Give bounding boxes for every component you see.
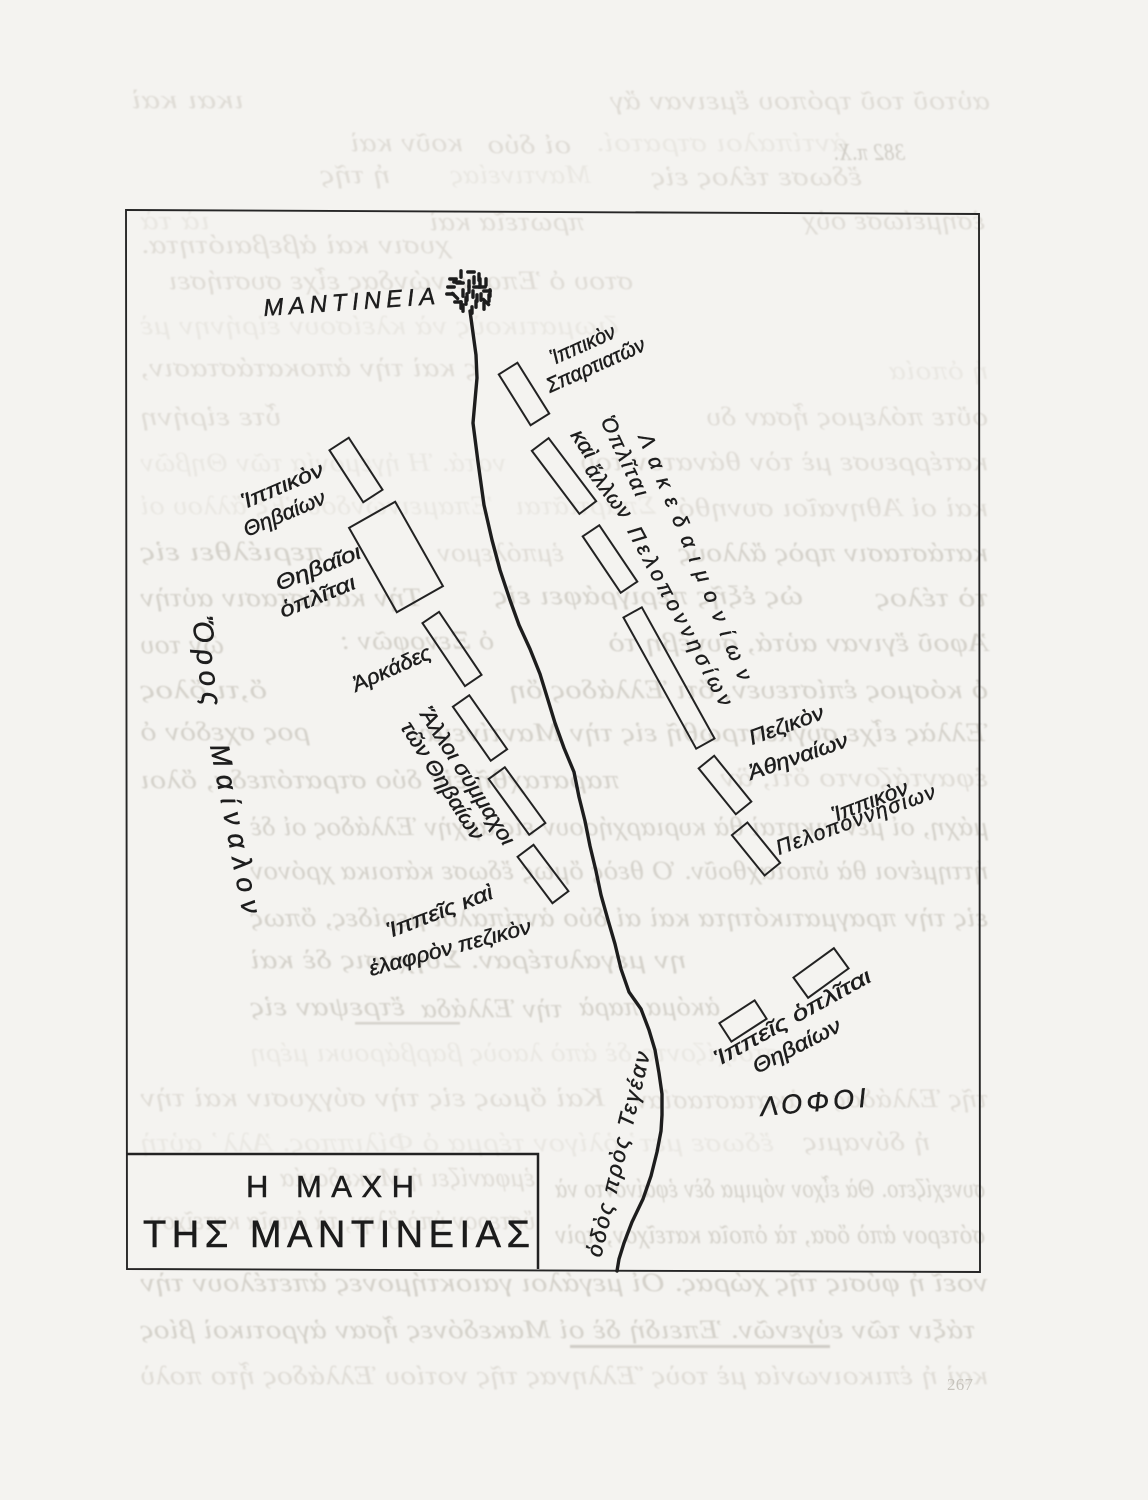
svg-text:ἀντίπαλοι στρατοί.: ἀντίπαλοι στρατοί. (595, 128, 848, 157)
svg-text:ἡ ὁποία: ἡ ὁποία (888, 356, 988, 385)
svg-text:κατάστασιν πρὸς ἄλλους: κατάστασιν πρὸς ἄλλους (678, 538, 988, 567)
svg-text:ἡττημένοι θὰ ὑποταχθοῦν. Ὁ θεὸ: ἡττημένοι θὰ ὑποταχθοῦν. Ὁ θεὸς ὅμως ἔδω… (250, 856, 988, 885)
svg-text:ς καὶ τὴν ἀποκατάστασιν,: ς καὶ τὴν ἀποκατάστασιν, (140, 353, 478, 382)
svg-text:ἡ τῆς: ἡ τῆς (320, 160, 390, 189)
svg-text:ζιωματικοὺς νὰ κλείσουν εἰρήνη: ζιωματικοὺς νὰ κλείσουν εἰρήνην μὲ (140, 311, 619, 340)
svg-text:καὶ οἱ Ἀθηναῖοι συνηθό: καὶ οἱ Ἀθηναῖοι συνηθό (678, 493, 988, 522)
svg-text:Ἀφοῦ ἔγιναν αὐτά, συνέβη τὸ: Ἀφοῦ ἔγιναν αὐτά, συνέβη τὸ (608, 628, 990, 657)
svg-text:σότερον ἀπὸ ὅσα, τὰ ὁποῖα κατε: σότερον ἀπὸ ὅσα, τὰ ὁποῖα κατεῖχον, πρὶν (555, 1220, 985, 1249)
svg-text:οἱ δύο: οἱ δύο (487, 130, 571, 159)
svg-text:ἔτρεψαν εἰς: ἔτρεψαν εἰς (250, 992, 405, 1021)
svg-text:ὡς ἑξῆς περιγράφει εἰς: ὡς ἑξῆς περιγράφει εἰς (493, 581, 803, 610)
svg-text:τάξιν τῶν εὐγενῶν. Ἐπειδὴ δὲ ο: τάξιν τῶν εὐγενῶν. Ἐπειδὴ δὲ οἱ Μακεδόνε… (140, 1315, 975, 1344)
svg-text:ἀκόμα παρὰ: ἀκόμα παρὰ (578, 992, 720, 1021)
svg-text:ἐσημείωσε οὐχ: ἐσημείωσε οὐχ (802, 206, 985, 235)
svg-text:περιέλθει εἰς: περιέλθει εἰς (140, 537, 323, 566)
svg-text:στοιχίζοντο δὲ ἀπὸ λαοὺς βαρβά: στοιχίζοντο δὲ ἀπὸ λαοὺς βαρβάρουκι μέρη (250, 1038, 780, 1067)
svg-text:Η ΜΑΧΗ: Η ΜΑΧΗ (246, 1169, 422, 1204)
svg-text:τὸ τέλος: τὸ τέλος (875, 583, 988, 612)
svg-text:χυσιν καὶ ἀβεβαιότητα.: χυσιν καὶ ἀβεβαιότητα. (140, 230, 454, 259)
svg-text:ἔδωσε τέλος εἰς: ἔδωσε τέλος εἰς (651, 162, 862, 191)
svg-text:εἰς τὴν πραγματικότητα καὶ αἱ: εἰς τὴν πραγματικότητα καὶ αἱ δύο ἀντίπα… (250, 903, 988, 932)
svg-text:Ἑλλὰς εἶχε συγκεντρωθῆ εἰς τὴν: Ἑλλὰς εἶχε συγκεντρωθῆ εἰς τὴν Μαντίνεια… (411, 718, 988, 747)
svg-text:ικαι καὶ: ικαι καὶ (131, 85, 244, 114)
svg-text:Μαντινείας: Μαντινείας (450, 160, 592, 189)
svg-text:οὔτε πόλεμος ἦσαν δυ: οὔτε πόλεμος ἦσαν δυ (706, 402, 988, 431)
svg-text:ὁ κόσμος ἐπίστευεν, ὅτι Ἑλλάδο: ὁ κόσμος ἐπίστευεν, ὅτι Ἑλλάδος ὅη (509, 675, 988, 704)
svg-text:κοῦν καὶ: κοῦν καὶ (350, 128, 463, 157)
svg-text:267: 267 (947, 1375, 974, 1394)
svg-text:ὗτε εἰρήνη: ὗτε εἰρήνη (140, 402, 281, 431)
svg-text:καὶ ἡ ἐπικοινωνία μὲ τοὺς Ἕλλη: καὶ ἡ ἐπικοινωνία μὲ τοὺς Ἕλληνας τῆς νο… (140, 1361, 988, 1390)
svg-text:ἡ δύναμις: ἡ δύναμις (803, 1127, 930, 1156)
svg-text:ἔδωσε μετ᾽ ὀλίγον τέρμα ὁ Φίλι: ἔδωσε μετ᾽ ὀλίγον τέρμα ὁ Φίλιππος. Ἀλλ᾽… (140, 1128, 774, 1157)
svg-text:ρος σχεδὸν ὁ: ρος σχεδὸν ὁ (140, 717, 310, 746)
svg-text:τὴν Ἑλλάδα: τὴν Ἑλλάδα (420, 994, 562, 1023)
svg-text:382 π.Χ.: 382 π.Χ. (833, 140, 906, 166)
svg-text:ἐμπόλεμον: ἐμπόλεμον (437, 538, 564, 567)
svg-text:Καὶ ὅμως εἰς τὴν σύγχυσιν καὶ: Καὶ ὅμως εἰς τὴν σύγχυσιν καὶ τὴν (140, 1083, 606, 1112)
svg-text:αὐτοῦ τοῦ τρόπου ἔμειναν ἄγ: αὐτοῦ τοῦ τρόπου ἔμειναν ἄγ (610, 86, 990, 115)
